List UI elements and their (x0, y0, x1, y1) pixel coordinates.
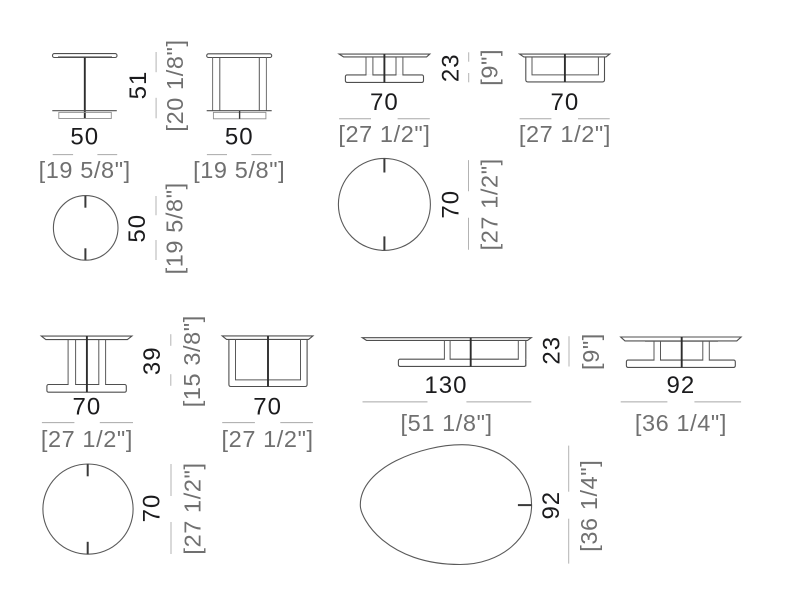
svg-text:[19 5/8"]: [19 5/8"] (39, 157, 131, 183)
svg-text:[15 3/8"]: [15 3/8"] (179, 315, 205, 407)
svg-text:70: 70 (438, 190, 465, 219)
svg-text:[19 5/8"]: [19 5/8"] (193, 157, 285, 183)
svg-text:70: 70 (551, 89, 580, 116)
svg-text:[36 1/4"]: [36 1/4"] (576, 460, 602, 552)
svg-text:51: 51 (125, 71, 152, 100)
svg-text:23: 23 (437, 53, 464, 82)
svg-text:[27 1/2"]: [27 1/2"] (41, 426, 133, 452)
svg-text:23: 23 (539, 336, 566, 365)
svg-text:[51 1/8"]: [51 1/8"] (401, 410, 493, 436)
svg-text:[27 1/2"]: [27 1/2"] (477, 158, 503, 250)
svg-text:[27 1/2"]: [27 1/2"] (222, 426, 314, 452)
svg-text:70: 70 (370, 89, 399, 116)
svg-text:[19 5/8"]: [19 5/8"] (161, 182, 187, 274)
svg-text:[9"]: [9"] (477, 49, 503, 86)
svg-text:50: 50 (225, 124, 254, 151)
svg-text:50: 50 (70, 124, 99, 151)
svg-text:50: 50 (124, 214, 151, 243)
svg-text:[27 1/2"]: [27 1/2"] (338, 121, 430, 147)
svg-text:[27 1/2"]: [27 1/2"] (519, 121, 611, 147)
svg-text:92: 92 (667, 372, 696, 399)
svg-text:70: 70 (73, 394, 102, 421)
svg-text:[9"]: [9"] (578, 333, 604, 370)
svg-text:[20 1/8"]: [20 1/8"] (162, 39, 188, 131)
svg-text:70: 70 (139, 494, 166, 523)
svg-text:[27 1/2"]: [27 1/2"] (180, 462, 206, 554)
svg-text:[36 1/4"]: [36 1/4"] (635, 410, 727, 436)
svg-text:92: 92 (538, 491, 565, 520)
svg-text:39: 39 (139, 346, 166, 375)
svg-text:70: 70 (253, 394, 282, 421)
svg-text:130: 130 (424, 372, 467, 399)
